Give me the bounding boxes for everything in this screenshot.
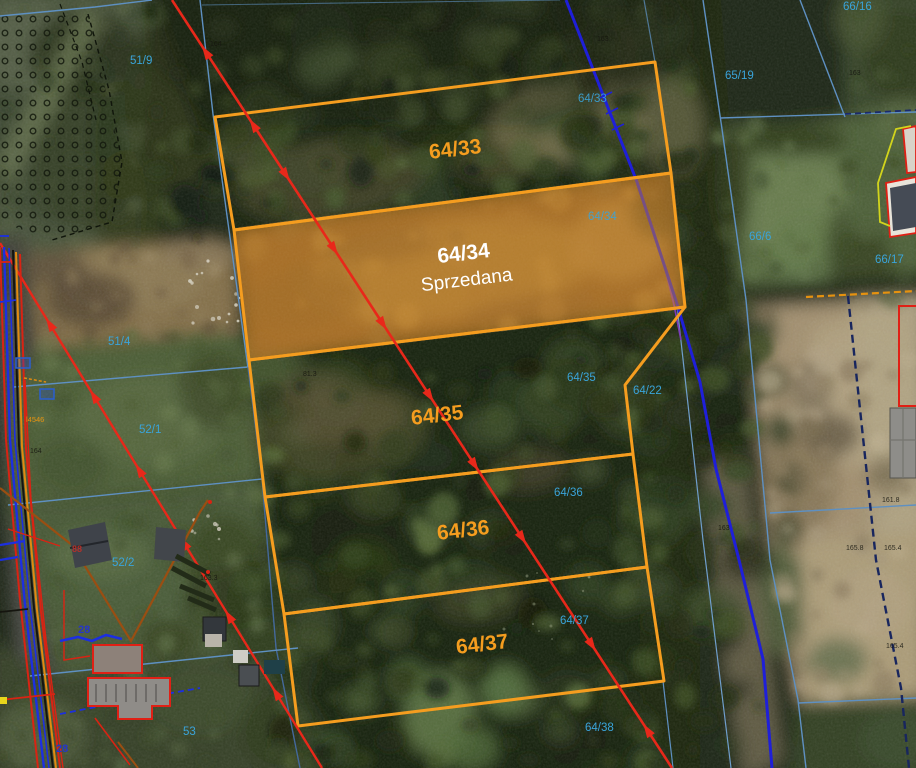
svg-text:163: 163 xyxy=(718,525,730,532)
svg-text:64/34: 64/34 xyxy=(588,211,617,223)
svg-text:64/37: 64/37 xyxy=(560,615,589,627)
svg-text:66/16: 66/16 xyxy=(843,1,872,13)
svg-text:66/17: 66/17 xyxy=(875,254,904,266)
svg-text:52/1: 52/1 xyxy=(139,424,161,436)
svg-text:165.4: 165.4 xyxy=(884,545,902,552)
svg-text:53: 53 xyxy=(183,726,196,738)
svg-text:28: 28 xyxy=(78,624,90,636)
svg-text:28: 28 xyxy=(56,743,68,755)
svg-text:64/38: 64/38 xyxy=(585,722,614,734)
svg-text:64/36: 64/36 xyxy=(554,487,583,499)
svg-text:88: 88 xyxy=(72,544,82,554)
svg-text:64/22: 64/22 xyxy=(633,385,662,397)
svg-text:65/19: 65/19 xyxy=(725,70,754,82)
svg-text:163: 163 xyxy=(849,70,861,77)
svg-text:163: 163 xyxy=(597,36,609,43)
svg-text:51/4: 51/4 xyxy=(108,336,131,348)
svg-text:64/33: 64/33 xyxy=(578,93,607,105)
svg-text:165.8: 165.8 xyxy=(846,545,864,552)
svg-text:163.3: 163.3 xyxy=(200,575,218,582)
svg-text:l4546: l4546 xyxy=(26,415,44,424)
svg-text:164: 164 xyxy=(30,448,42,455)
svg-text:64/35: 64/35 xyxy=(567,372,596,384)
svg-text:165.4: 165.4 xyxy=(886,643,904,650)
svg-text:51/9: 51/9 xyxy=(130,55,152,67)
svg-text:66/6: 66/6 xyxy=(749,231,771,243)
svg-text:81.3: 81.3 xyxy=(303,371,317,378)
svg-text:161.8: 161.8 xyxy=(882,497,900,504)
svg-text:164: 164 xyxy=(210,41,222,48)
svg-text:52/2: 52/2 xyxy=(112,557,134,569)
